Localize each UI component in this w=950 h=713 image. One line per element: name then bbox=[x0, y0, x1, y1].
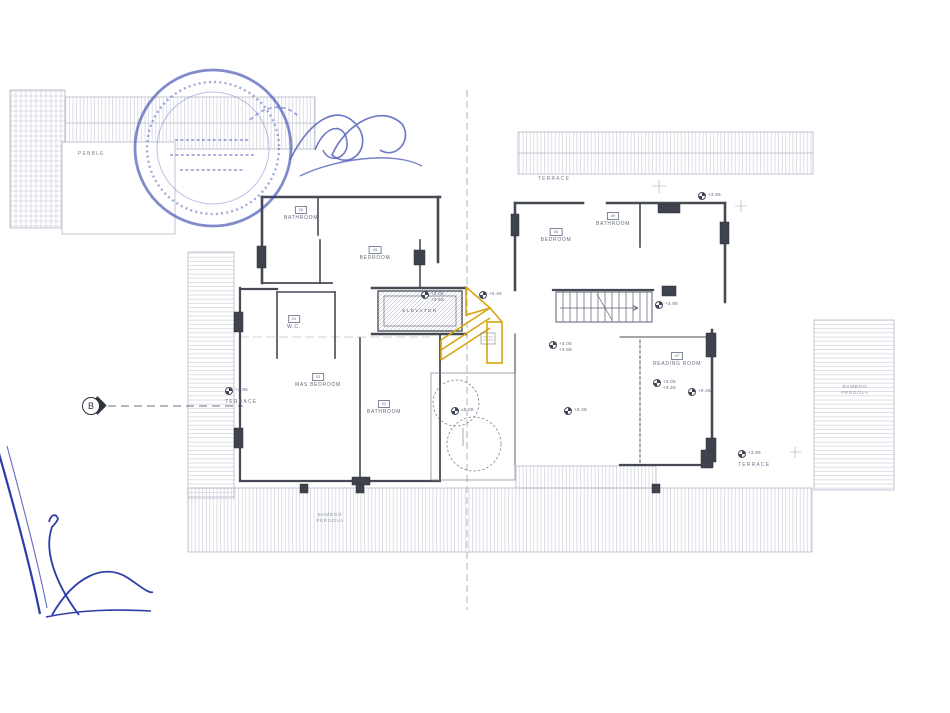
elevation-values: +3.05+3.65 bbox=[559, 341, 572, 352]
room-code: 04 bbox=[288, 315, 300, 323]
room-label: 03MAS BEDROOM bbox=[295, 373, 341, 388]
elevation-values: +0.45 bbox=[698, 388, 711, 394]
staircase bbox=[556, 292, 652, 322]
room-name: BATHROOM bbox=[596, 221, 630, 227]
elevation-marker: +3.05+3.65 bbox=[421, 291, 444, 302]
elevation-values: ±0.00 bbox=[461, 407, 474, 413]
room-label: 08BEDROOM bbox=[541, 228, 572, 243]
terrace-top-label: TERRACE bbox=[538, 176, 570, 182]
window-blocks bbox=[234, 204, 729, 493]
level-marker-icon bbox=[421, 291, 429, 299]
room-code: 06 bbox=[295, 206, 307, 214]
room-code: 07 bbox=[671, 352, 683, 360]
room-label: 09BATHROOM bbox=[596, 212, 630, 227]
elevation-marker: +3.95TERRACE bbox=[738, 450, 770, 468]
section-marker-letter: B bbox=[82, 397, 100, 415]
level-marker-icon bbox=[479, 291, 487, 299]
room-label: 02BATHROOM bbox=[367, 400, 401, 415]
elevation-values: +3.05+3.65 bbox=[431, 291, 444, 302]
room-label: 05BEDROOM bbox=[360, 246, 391, 261]
elevation-marker: +3.95TERRACE bbox=[225, 387, 257, 405]
elevation-marker: +0.45 bbox=[564, 407, 587, 415]
room-label: 06BATHROOM bbox=[284, 206, 318, 221]
room-code: 08 bbox=[550, 228, 562, 236]
level-marker-icon bbox=[564, 407, 572, 415]
room-code: 05 bbox=[369, 246, 381, 254]
floor-plan-sheet: PEBBLE TERRACE ELEVATOR BAMBOO PERGOLA B… bbox=[0, 0, 950, 713]
level-marker-icon bbox=[225, 387, 233, 395]
elevation-values: +0.45 bbox=[574, 407, 587, 413]
pebble-label: PEBBLE bbox=[78, 151, 105, 157]
elevation-marker: +3.05+3.25 bbox=[653, 379, 676, 390]
room-label: 07READING ROOM bbox=[653, 352, 701, 367]
level-marker-icon bbox=[655, 301, 663, 309]
courtyard-circles bbox=[431, 373, 515, 480]
elevation-marker: +0.45 bbox=[688, 388, 711, 396]
elevation-marker: +3.05+3.65 bbox=[549, 341, 572, 352]
level-marker-icon bbox=[698, 192, 706, 200]
walls bbox=[240, 197, 725, 481]
section-marker-b: B bbox=[82, 397, 112, 415]
elevation-values: +3.95 bbox=[665, 301, 678, 307]
level-marker-icon bbox=[738, 450, 746, 458]
elevation-values: +3.95 bbox=[748, 450, 761, 456]
room-code: 09 bbox=[607, 212, 619, 220]
level-marker-icon bbox=[688, 388, 696, 396]
terrace-label: TERRACE bbox=[738, 462, 770, 468]
room-label: 04W.C. bbox=[287, 315, 301, 330]
pen-scribbles bbox=[0, 446, 153, 617]
room-name: W.C. bbox=[287, 324, 301, 330]
room-code: 03 bbox=[312, 373, 324, 381]
terrace-label: TERRACE bbox=[225, 399, 257, 405]
room-code: 02 bbox=[378, 400, 390, 408]
level-marker-icon bbox=[549, 341, 557, 349]
elevation-marker: +3.95 bbox=[698, 192, 721, 200]
level-marker-icon bbox=[451, 407, 459, 415]
room-name: BEDROOM bbox=[360, 255, 391, 261]
room-name: MAS BEDROOM bbox=[295, 382, 341, 388]
room-name: BEDROOM bbox=[541, 237, 572, 243]
elevation-values: +3.95 bbox=[235, 387, 248, 393]
room-name: READING ROOM bbox=[653, 361, 701, 367]
room-name: BATHROOM bbox=[367, 409, 401, 415]
level-marker-icon bbox=[653, 379, 661, 387]
elevation-marker: ±0.00 bbox=[451, 407, 474, 415]
floor-plan-drawing bbox=[0, 0, 950, 713]
bamboo-pergola-bottom-label: BAMBOO PERGOLA bbox=[316, 512, 343, 524]
elevation-values: +3.05+3.25 bbox=[663, 379, 676, 390]
elevation-marker: +3.95 bbox=[655, 301, 678, 309]
bamboo-pergola-right-label: BAMBOO PERGOLA bbox=[841, 384, 868, 396]
elevation-values: +3.95 bbox=[708, 192, 721, 198]
elevator-label: ELEVATOR bbox=[402, 308, 437, 313]
elevation-marker: +0.45 bbox=[479, 291, 502, 299]
elevation-values: +0.45 bbox=[489, 291, 502, 297]
room-name: BATHROOM bbox=[284, 215, 318, 221]
